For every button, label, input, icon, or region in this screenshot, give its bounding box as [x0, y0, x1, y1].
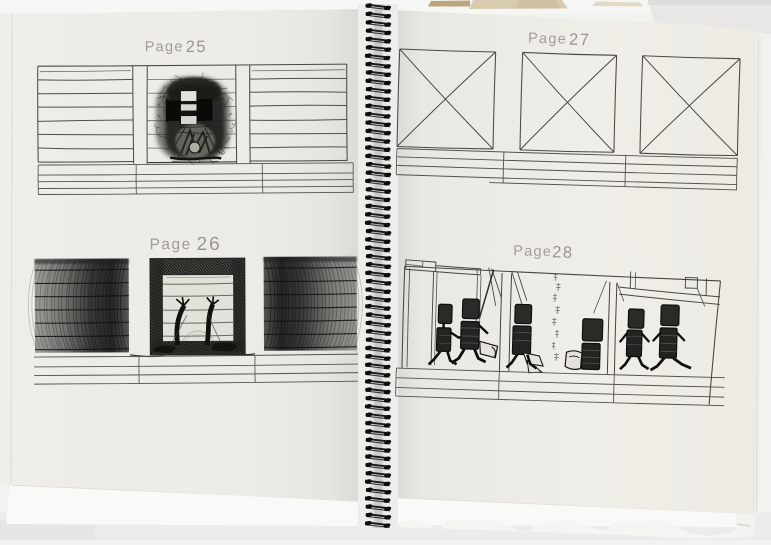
svg-text:Page: Page: [513, 243, 553, 260]
svg-text:27: 27: [569, 31, 591, 50]
svg-text:Page: Page: [528, 31, 568, 48]
svg-text:25: 25: [186, 38, 207, 56]
svg-text:28: 28: [552, 243, 574, 262]
svg-text:Page: Page: [145, 39, 184, 55]
svg-text:26: 26: [196, 234, 221, 255]
svg-text:Page: Page: [150, 236, 192, 253]
